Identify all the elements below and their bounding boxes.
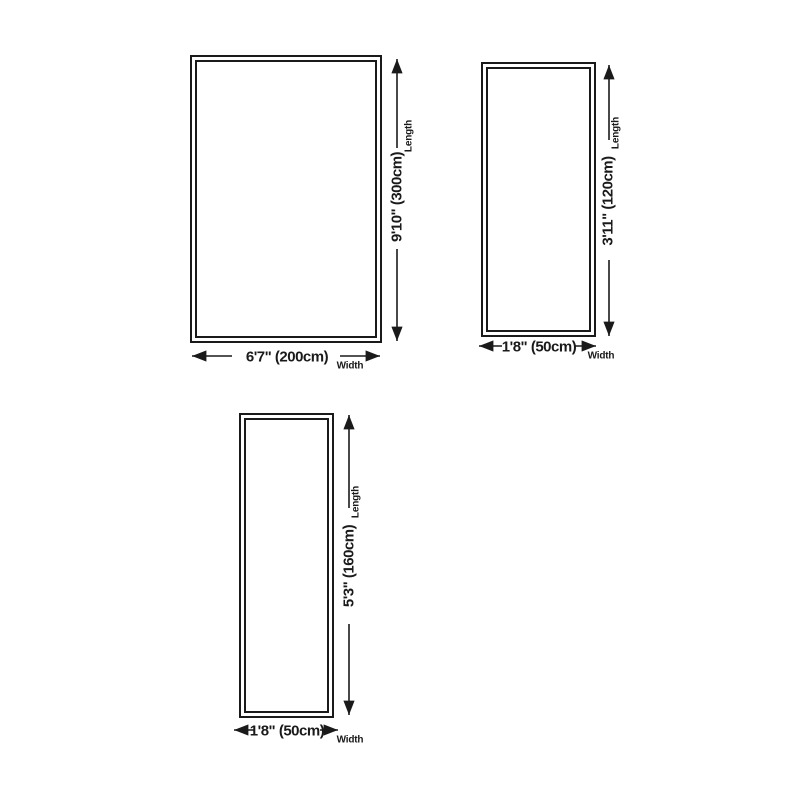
large-rug-rect	[190, 55, 382, 343]
small-runner-length-caption: Length	[611, 117, 622, 149]
large-rug-width-label: 6'7" (200cm)	[246, 349, 328, 366]
large-rug-length-caption: Length	[404, 120, 415, 152]
large-rug-width-caption: Width	[337, 361, 364, 372]
small-runner-width-caption: Width	[588, 351, 615, 362]
large-rug-inner-rect	[195, 60, 377, 338]
dimension-arrows	[0, 0, 800, 800]
large-rug-length-label: 9'10" (300cm)	[389, 152, 406, 242]
small-runner-width-label: 1'8" (50cm)	[502, 339, 576, 356]
long-runner-rect	[239, 413, 334, 718]
long-runner-inner-rect	[244, 418, 329, 713]
small-runner-rect	[481, 62, 596, 337]
rug-size-diagram: 9'10" (300cm) Length 6'7" (200cm) Width …	[0, 0, 800, 800]
small-runner-inner-rect	[486, 67, 591, 332]
long-runner-length-caption: Length	[351, 486, 362, 518]
long-runner-length-label: 5'3" (160cm)	[341, 525, 358, 607]
small-runner-length-label: 3'11" (120cm)	[600, 156, 617, 245]
long-runner-width-caption: Width	[337, 735, 364, 746]
long-runner-width-label: 1'8" (50cm)	[250, 723, 324, 740]
